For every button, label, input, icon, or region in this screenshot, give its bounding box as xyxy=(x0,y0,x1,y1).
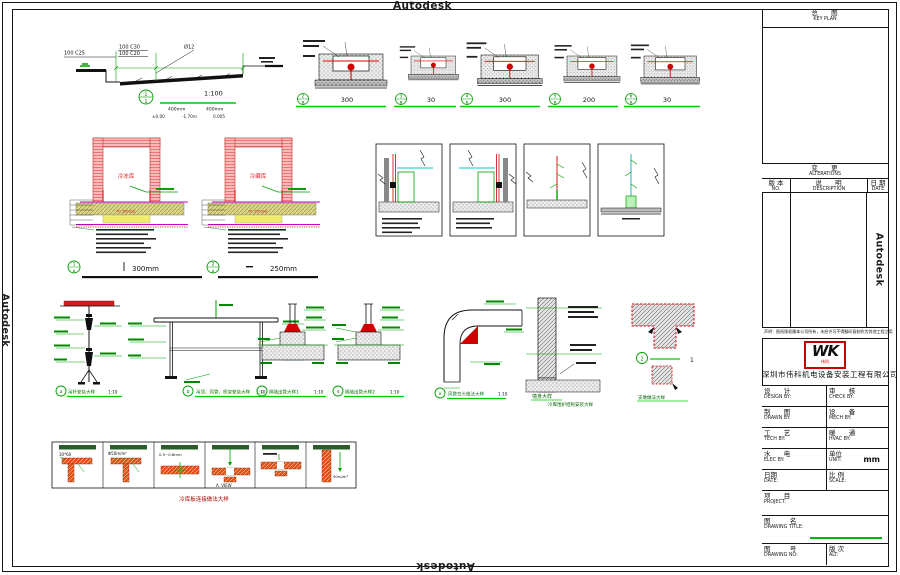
marker-number: 6 xyxy=(630,94,633,99)
col-desc: 说 明 DESCRIPTION xyxy=(790,179,868,192)
key-plan-title-cn: 总 图 xyxy=(762,9,888,17)
marker-number: 1 xyxy=(73,262,76,268)
field-elec: 水 电 ELEC BY: xyxy=(762,449,827,469)
disclaimer-text: 声明：图纸版权属本公司所有，未经许可不得翻印复制作为其他工程之用 xyxy=(764,329,881,335)
detail-marker: 2 B xyxy=(298,94,309,106)
caption-scale: 1:10 xyxy=(108,390,118,395)
marker-number: 4 xyxy=(466,94,469,99)
ramp-dim-label-3: 100 C20 xyxy=(119,51,140,57)
field-elec-cn: 水 电 xyxy=(764,450,824,458)
marker-ref: B xyxy=(554,101,557,106)
ramp-level-2: -1.70m xyxy=(182,114,197,119)
panel-table-caption: 冷库板连接做法大样 xyxy=(179,495,229,503)
field-check: 审 核 CHECK BY: xyxy=(827,386,888,406)
watermark-left: Autodesk xyxy=(0,294,11,354)
panel-cell-6: 50m/m³ xyxy=(322,450,349,482)
marker-number: 2 xyxy=(302,94,305,99)
pipe-penetration-detail-1: c 隔墙出管大样1 1:10 xyxy=(254,298,332,402)
alterations-header: 变 更 ALTERATIONS xyxy=(762,163,888,178)
trench-dim: 30 xyxy=(663,96,671,104)
ramp-marker-number: 1 xyxy=(144,92,147,98)
penetration-drawing xyxy=(332,304,404,364)
field-row-drawn: 制 图 DRAWN BY: 设 备 MECH BY: xyxy=(762,406,888,427)
t-block-drawing xyxy=(632,304,694,348)
col-no-en: NO. xyxy=(762,187,790,193)
cad-drawing-sheet: Autodesk Autodesk Autodesk Autodesk xyxy=(0,0,900,575)
trench-detail-3: 4 B 300 xyxy=(457,36,543,114)
penetration-drawing xyxy=(258,304,328,364)
cell-label: Φ50m/m² xyxy=(108,451,127,456)
scale-tick xyxy=(246,266,253,267)
junction-panel-4 xyxy=(598,144,664,236)
marker-number: 3 xyxy=(400,94,403,99)
field-design-en: DESIGN BY: xyxy=(764,395,824,401)
marker-number: 5 xyxy=(554,94,557,99)
drawing-no-en: DRAWING NO: xyxy=(764,553,824,559)
key-plan-header: 总 图 KEY PLAN xyxy=(762,9,888,28)
wall-caption-1: 墙身大样 xyxy=(532,393,552,400)
panel-cell-3: 0.5~0.8mm xyxy=(159,452,199,478)
panel-cell-4: A. VIEW xyxy=(212,448,250,488)
caption-scale: 1:10 xyxy=(390,390,400,395)
col-date-en: DATE xyxy=(868,187,888,193)
field-mech-en: MECH BY: xyxy=(829,416,886,422)
field-hvac: 暖 通 HVAC BY: xyxy=(827,428,888,448)
trench-drawing xyxy=(400,46,459,80)
detail-marker: 4 B xyxy=(462,94,473,106)
field-altver: 版 次 ALT: xyxy=(827,544,888,565)
field-design-cn: 设 计 xyxy=(764,387,824,395)
caption-text: 吊杆安装大样 xyxy=(68,389,95,396)
watermark-right: Autodesk xyxy=(873,233,884,287)
project-cn: 项 目 xyxy=(764,492,886,500)
trench-detail-4: 5 B 200 xyxy=(545,36,621,114)
field-unit: 单位 UNIT: mm xyxy=(827,449,888,469)
field-check-cn: 审 核 xyxy=(829,387,886,395)
field-scale-en: SCALE: xyxy=(829,479,886,485)
col-desc-cn: 说 明 xyxy=(791,179,867,187)
ramp-dim1: 400mm xyxy=(168,107,185,113)
room-name-label: 冷藏库 xyxy=(250,172,267,180)
watermark-bottom: Autodesk xyxy=(416,560,475,572)
alterations-divider-1 xyxy=(790,193,791,327)
caption-letter: d xyxy=(337,389,340,395)
trench-drawing xyxy=(631,45,700,84)
detail-marker: 5 B xyxy=(550,94,561,106)
caption-scale: 1:10 xyxy=(314,390,324,395)
trench-drawing xyxy=(303,40,387,88)
ramp-detail-marker: 1 1 xyxy=(139,90,153,105)
drawing-title-cn: 图 名 xyxy=(764,517,886,525)
alterations-title-cn: 变 更 xyxy=(762,164,888,172)
company-block: WK 伟科 深圳市伟科机电设备安装工程有限公司 xyxy=(762,339,888,385)
panel-cell-1: 30*60 xyxy=(59,452,92,482)
trench-dim: 300 xyxy=(341,96,353,104)
caption-scale: 1:10 xyxy=(498,392,508,397)
col-no: 版 本 NO. xyxy=(762,179,790,192)
cell-label: 30*60 xyxy=(59,452,72,457)
field-mech: 设 备 MECH BY: xyxy=(827,407,888,427)
trench-dim: 200 xyxy=(583,96,595,104)
field-check-en: CHECK BY: xyxy=(829,395,886,401)
marker-number: 2 xyxy=(212,262,215,268)
detail-marker: 1 A xyxy=(68,261,80,275)
adjacent-number: 1 xyxy=(690,357,694,364)
cold-room-drawing xyxy=(202,138,320,253)
field-scale: 比 例 SCALE: xyxy=(827,470,888,490)
field-mech-cn: 设 备 xyxy=(829,408,886,416)
field-row-tech: 工 艺 TECH BY: 暖 通 HVAC BY: xyxy=(762,427,888,448)
col-desc-en: DESCRIPTION xyxy=(791,187,867,193)
ramp-dim2: 400mm xyxy=(206,107,223,113)
trench-drawing xyxy=(555,45,621,82)
junction-panel-3 xyxy=(524,144,590,236)
field-hvac-en: HVAC BY: xyxy=(829,437,886,443)
caption-letter: e xyxy=(439,392,442,397)
cell-label: 0.5~0.8mm xyxy=(159,452,182,457)
cold-dim: 300mm xyxy=(132,265,159,273)
cell-label: A. VIEW xyxy=(216,483,232,488)
cold-dim: 250mm xyxy=(270,265,297,273)
slab-spec-label: PC 3500psi xyxy=(249,210,268,214)
marker-ref: A xyxy=(211,269,215,275)
trench-detail-5: 6 B 30 xyxy=(621,36,703,114)
unit-value: mm xyxy=(863,455,880,464)
field-hvac-cn: 暖 通 xyxy=(829,429,886,437)
cold-room-section-2: 冷藏库 PC 3500psi 2 A 250mm xyxy=(200,136,350,284)
table-border xyxy=(52,442,356,488)
caption-text: 吊顶、风管、桥架安装大样 xyxy=(196,389,250,396)
trench-drawing xyxy=(467,42,543,85)
duct-elbow-detail: e 风管弯头做法大样 1:10 xyxy=(424,298,530,402)
caption-letter: c xyxy=(261,390,264,395)
field-date-cn: 日期 xyxy=(764,471,824,479)
col-date-cn: 日 期 xyxy=(868,179,888,187)
field-tech: 工 艺 TECH BY: xyxy=(762,428,827,448)
detail-marker: 6 B xyxy=(626,94,637,106)
caption-number: 2 xyxy=(640,357,643,363)
field-tech-cn: 工 艺 xyxy=(764,429,824,437)
wall-section-detail: 墙身大样 冷库围护结构安装大样 xyxy=(524,294,626,408)
caption-text: 风管弯头做法大样 xyxy=(448,391,484,398)
panel-cell-5 xyxy=(261,453,301,476)
caption-underline xyxy=(218,276,318,278)
company-name: 深圳市伟科机电设备安装工程有限公司 xyxy=(762,369,888,380)
field-tech-en: TECH BY: xyxy=(764,437,824,443)
trench-dim: 300 xyxy=(499,96,511,104)
junction-panel-group xyxy=(375,142,665,242)
watermark-top: Autodesk xyxy=(393,0,452,12)
trench-detail-1: 2 B 300 xyxy=(293,36,389,114)
alterations-column-headers: 版 本 NO. 说 明 DESCRIPTION 日 期 DATE xyxy=(762,178,888,193)
panel-joint-table: 30*60 Φ50m/m² 0.5~0.8mm A. VIEW xyxy=(50,440,362,506)
caption-underline xyxy=(82,276,202,278)
ramp-section-detail: 100 C25 100 C30 100 C20 Ø12 1 1 1:100 40… xyxy=(56,33,291,121)
cold-room-drawing xyxy=(70,138,188,253)
company-logo-subtext: 伟科 xyxy=(806,360,844,364)
marker-ref: B xyxy=(302,101,305,106)
caption-letter: b xyxy=(187,389,190,395)
plinth-caption: 支墩做法大样 xyxy=(638,394,665,401)
hanger-rod-detail: a 吊杆安装大样 1:10 xyxy=(52,296,126,402)
junction-panel-1 xyxy=(376,144,442,236)
detail-marker: 3 B xyxy=(396,94,407,106)
disclaimer-row: 声明：图纸版权属本公司所有，未经许可不得翻印复制作为其他工程之用 xyxy=(762,327,888,339)
key-plan-title-en: KEY PLAN xyxy=(762,17,888,23)
field-row-design: 设 计 DESIGN BY: 审 核 CHECK BY: xyxy=(762,385,888,406)
project-en: PROJECT: xyxy=(764,500,886,506)
key-plan-area xyxy=(762,27,888,163)
field-elec-en: ELEC BY: xyxy=(764,458,824,464)
altver-cn: 版 次 xyxy=(829,545,886,553)
panel-cell-2: Φ50m/m² xyxy=(108,451,141,482)
cell-label: 50m/m³ xyxy=(333,474,349,479)
field-drawn: 制 图 DRAWN BY: xyxy=(762,407,827,427)
field-row-elec: 水 电 ELEC BY: 单位 UNIT: mm xyxy=(762,448,888,469)
detail-marker: 2 A xyxy=(207,261,219,275)
elbow-drawing xyxy=(444,301,524,389)
wall-caption-2: 冷库围护结构安装大样 xyxy=(548,401,593,408)
marker-ref: B xyxy=(400,101,403,106)
col-no-cn: 版 本 xyxy=(762,179,790,187)
hanger-drawing xyxy=(54,301,122,385)
company-logo-text: WK xyxy=(806,343,844,360)
alterations-divider-2 xyxy=(866,193,867,327)
altver-en: ALT: xyxy=(829,553,886,559)
trench-dim: 30 xyxy=(427,96,435,104)
field-scale-cn: 比 例 xyxy=(829,471,886,479)
room-name-label: 冷冻库 xyxy=(118,172,135,180)
drawing-title-en: DRAWING TITLE: xyxy=(764,525,886,531)
field-drawn-en: DRAWN BY: xyxy=(764,416,824,422)
drawing-no-cn: 图 号 xyxy=(764,545,824,553)
marker-ref: A xyxy=(72,269,76,275)
slab-spec-label: PC 3500psi xyxy=(117,210,136,214)
cold-room-section-1: 冷冻库 PC 3500psi 1 A 300mm xyxy=(60,136,210,284)
marker-ref: B xyxy=(630,101,633,106)
project-row: 项 目 PROJECT: xyxy=(762,490,888,515)
field-date: 日期 DATE: xyxy=(762,470,827,490)
ramp-marker-ref: 1 xyxy=(144,99,147,105)
trench-detail-2: 3 B 30 xyxy=(391,36,459,114)
ramp-dim-label-2: 100 C30 xyxy=(119,45,140,51)
table-header-strips xyxy=(59,445,350,450)
company-logo: WK 伟科 xyxy=(804,341,846,369)
caption-text: 隔墙出管大样2 xyxy=(345,389,375,396)
field-date-en: DATE: xyxy=(764,479,824,485)
junction-panel-2 xyxy=(450,144,516,236)
ramp-drawing xyxy=(64,50,283,86)
col-date: 日 期 DATE xyxy=(868,179,888,192)
ramp-level-1: ±0.00 xyxy=(152,114,165,119)
field-design: 设 计 DESIGN BY: xyxy=(762,386,827,406)
drawing-title-row: 图 名 DRAWING TITLE: xyxy=(762,515,888,543)
pipe-penetration-detail-2: d 隔墙出管大样2 1:10 xyxy=(328,298,410,402)
drawing-title-green-line xyxy=(810,537,882,539)
ramp-scale: 1:100 xyxy=(204,90,223,98)
caption-letter: a xyxy=(60,390,63,395)
field-drawing-no: 图 号 DRAWING NO: xyxy=(762,544,827,565)
square-block-drawing xyxy=(652,366,678,390)
field-row-date: 日期 DATE: 比 例 SCALE: xyxy=(762,469,888,490)
wall-drawing xyxy=(526,298,602,392)
drawing-no-row: 图 号 DRAWING NO: 版 次 ALT: xyxy=(762,543,888,565)
ramp-rebar-label: Ø12 xyxy=(184,44,194,51)
marker-ref: B xyxy=(466,101,469,106)
ramp-dim-label-1: 100 C25 xyxy=(64,51,85,57)
field-drawn-cn: 制 图 xyxy=(764,408,824,416)
ramp-level-3: 0.005 xyxy=(213,114,225,119)
caption-text: 隔墙出管大样1 xyxy=(269,389,299,396)
plinth-detail: 2 1 支墩做法大样 xyxy=(628,296,710,406)
